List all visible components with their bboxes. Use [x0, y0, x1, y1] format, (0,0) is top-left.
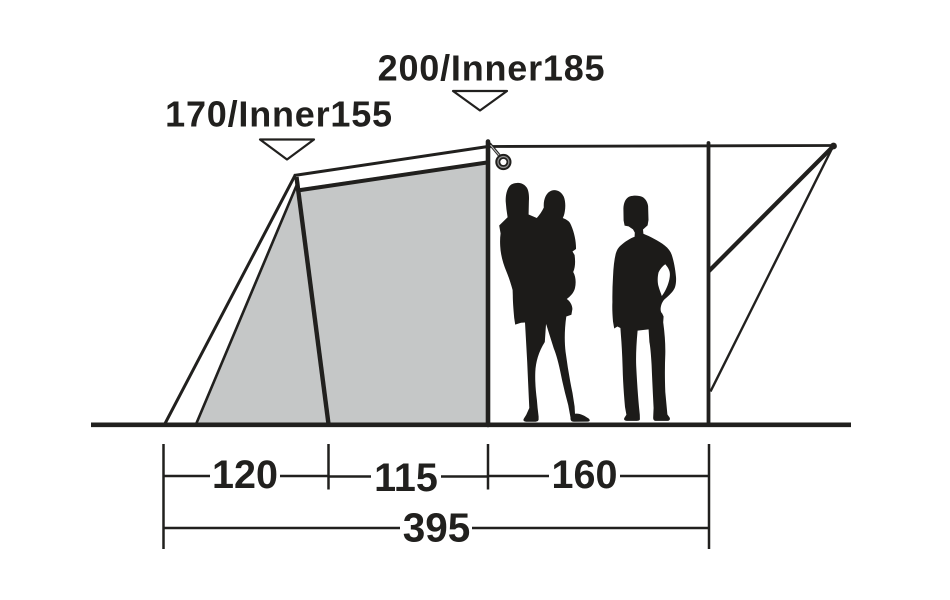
svg-text:115: 115 [374, 456, 438, 500]
svg-text:200/Inner185: 200/Inner185 [378, 48, 606, 89]
svg-text:160: 160 [552, 453, 618, 497]
svg-text:395: 395 [403, 505, 471, 551]
svg-text:170/Inner155: 170/Inner155 [165, 94, 393, 135]
svg-text:120: 120 [212, 453, 278, 497]
